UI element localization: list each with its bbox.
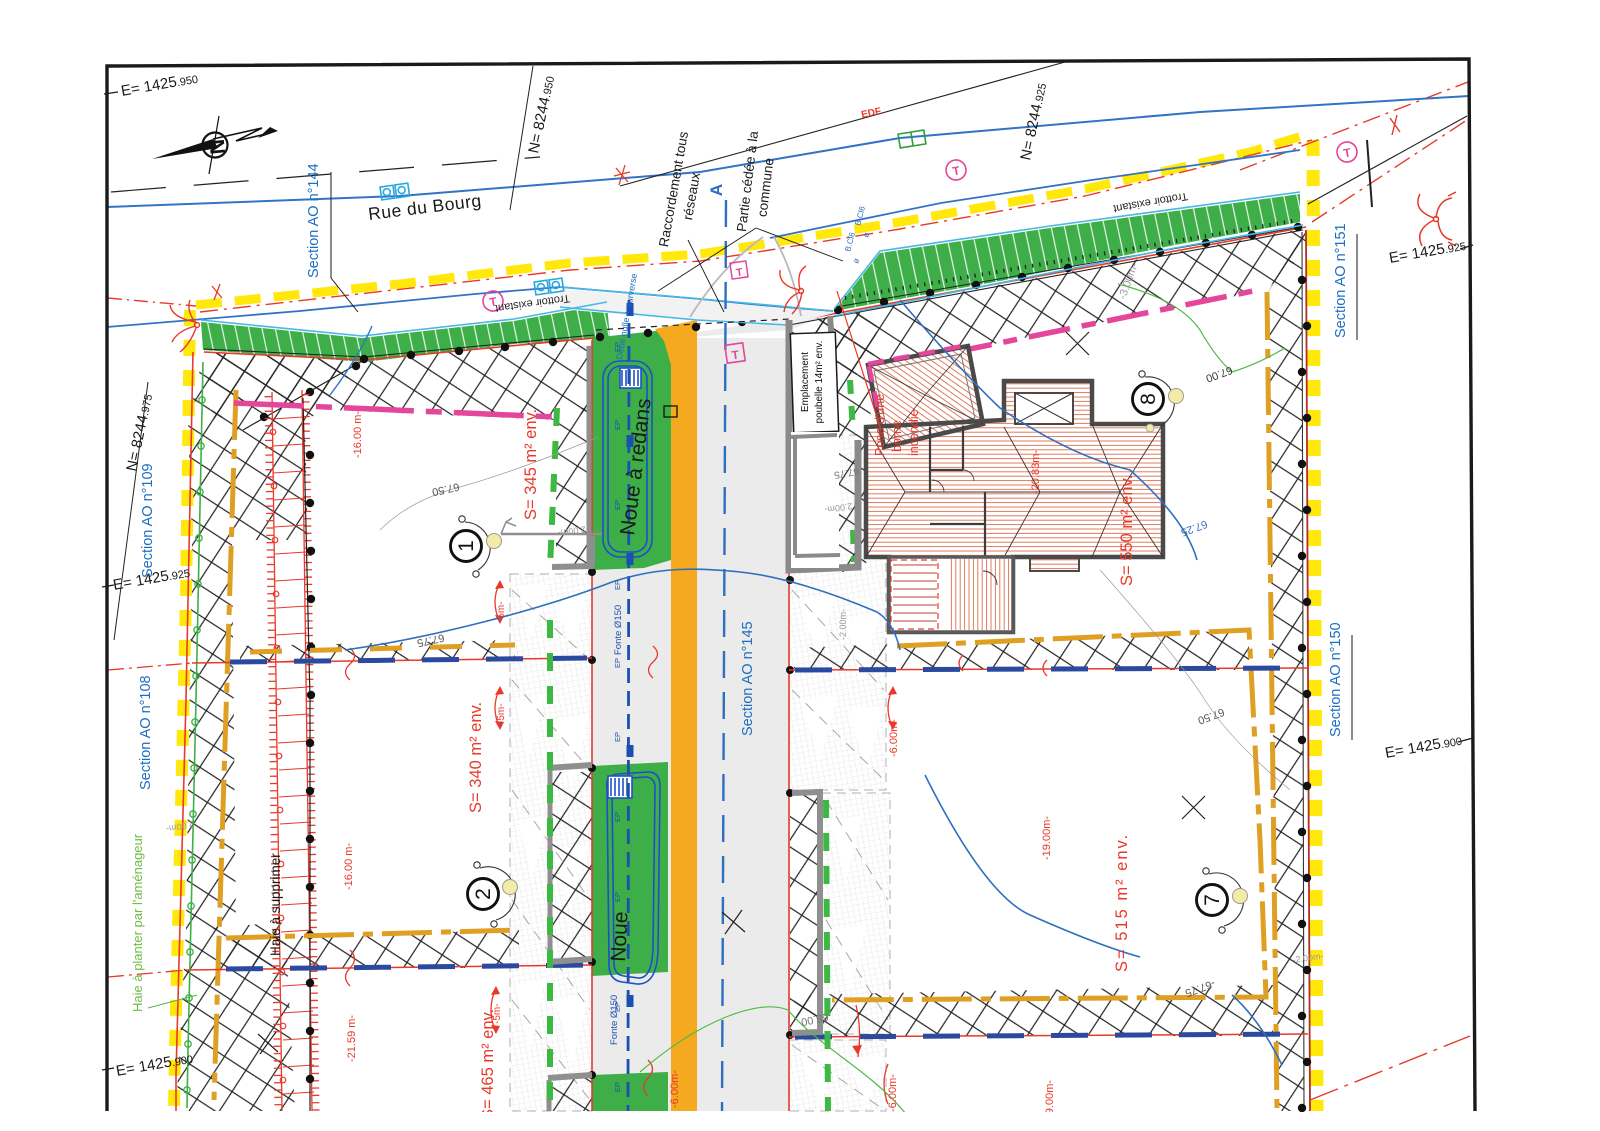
svg-text:-16.00 m-: -16.00 m- [343,843,355,890]
svg-text:-6.00m-: -6.00m- [887,1074,899,1112]
svg-text:Section AO n°151: Section AO n°151 [1333,223,1349,338]
svg-text:incendie: incendie [907,409,921,456]
svg-text:8: 8 [1137,393,1160,405]
svg-text:EP: EP [613,580,622,590]
svg-text:Section AO n°145: Section AO n°145 [740,621,756,736]
svg-text:Haie à supprimer: Haie à supprimer [268,853,283,956]
svg-text:EP: EP [613,420,622,430]
svg-text:Section AO n°144: Section AO n°144 [306,163,322,278]
svg-text:7: 7 [1201,894,1224,906]
svg-text:-21.59 m-: -21.59 m- [346,1015,358,1062]
svg-text:poubelle 14m² env.: poubelle 14m² env. [814,341,825,424]
svg-text:Section AO n°108: Section AO n°108 [138,675,154,790]
svg-text:EP: EP [613,732,622,742]
svg-text:-20.83m-: -20.83m- [1030,450,1042,494]
svg-text:Section AO n°109: Section AO n°109 [140,463,156,578]
svg-text:S= 550 m² env.: S= 550 m² env. [1118,475,1136,586]
svg-text:A: A [707,184,726,196]
svg-text:Fonte Ø150: Fonte Ø150 [613,605,624,655]
svg-text:N: N [204,138,228,155]
svg-text:-6.00m-: -6.00m- [669,1070,681,1108]
svg-text:-2.00m-: -2.00m- [838,609,848,640]
svg-text:2: 2 [472,888,495,900]
svg-text:S= 340 m² env.: S= 340 m² env. [467,702,485,813]
svg-text:borne: borne [890,420,904,452]
svg-text:1: 1 [455,540,478,552]
svg-text:EP: EP [613,1002,622,1012]
svg-text:-5m-: -5m- [496,703,507,724]
svg-text:-6.00m-: -6.00m- [888,719,900,757]
svg-text:S= 345 m² env.: S= 345 m² env. [522,409,540,520]
svg-text:Noue: Noue [607,911,633,962]
svg-text:Section AO n°150: Section AO n°150 [1328,622,1344,737]
svg-text:Haie à planter par l'aménageur: Haie à planter par l'aménageur [130,833,145,1012]
svg-text:S= 515 m² env.: S= 515 m² env. [1113,833,1131,972]
svg-text:Emplacement: Emplacement [800,352,811,412]
svg-text:-19.00m-: -19.00m- [1041,816,1053,860]
svg-text:EP: EP [613,892,622,902]
svg-text:-16.00 m-: -16.00 m- [352,411,364,458]
svg-text:EP: EP [613,812,622,822]
svg-text:-5m-: -5m- [496,601,507,622]
svg-text:S= 465 m² env.: S= 465 m² env. [479,1009,497,1120]
svg-text:Pose d'une: Pose d'une [873,394,887,456]
svg-text:-5m-: -5m- [492,1003,503,1024]
svg-text:EP: EP [613,1082,622,1092]
svg-text:EP: EP [613,500,622,510]
svg-text:EP: EP [613,658,622,668]
